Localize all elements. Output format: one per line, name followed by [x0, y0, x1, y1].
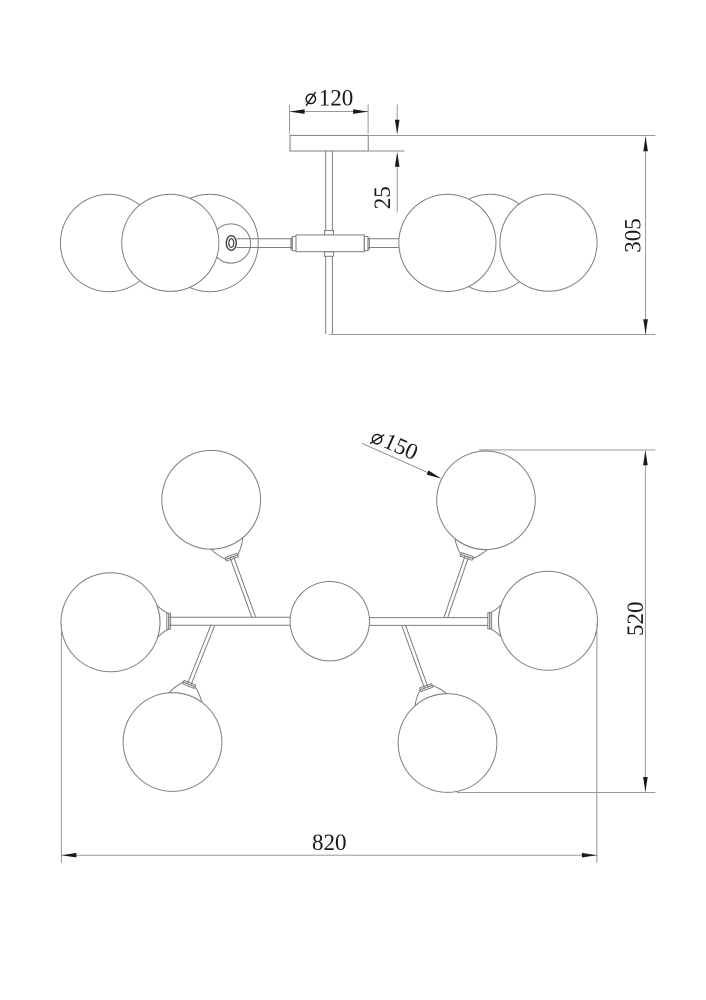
svg-text:520: 520: [623, 602, 648, 637]
svg-text:120: 120: [319, 86, 354, 111]
svg-text:25: 25: [370, 186, 395, 209]
svg-text:820: 820: [312, 830, 347, 855]
svg-text:305: 305: [621, 218, 646, 253]
